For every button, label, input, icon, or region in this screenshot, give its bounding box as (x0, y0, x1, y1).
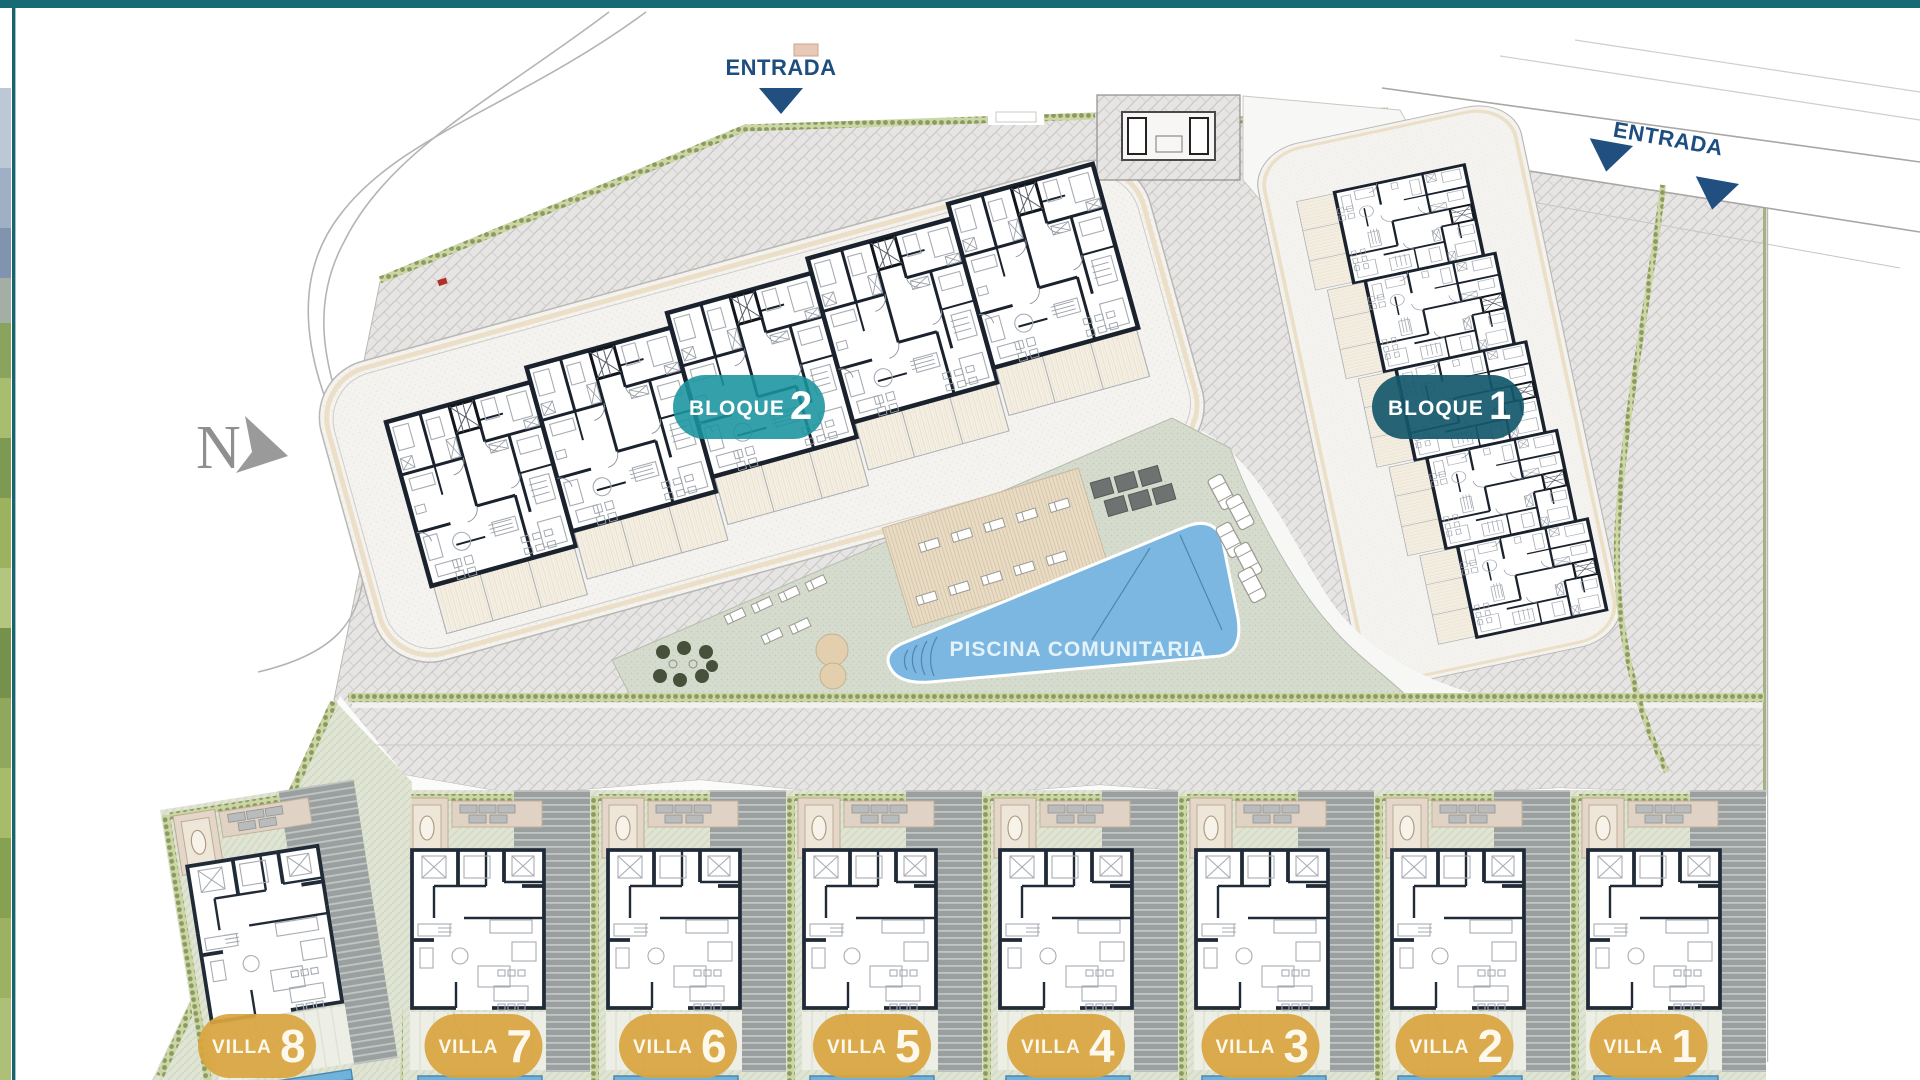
svg-text:VILLA: VILLA (439, 1037, 499, 1058)
svg-text:N: N (196, 414, 241, 482)
svg-text:VILLA: VILLA (1021, 1037, 1081, 1058)
svg-text:6: 6 (701, 1020, 727, 1072)
svg-text:BLOQUE: BLOQUE (1388, 397, 1484, 420)
svg-text:2: 2 (790, 384, 812, 428)
svg-text:8: 8 (280, 1020, 306, 1072)
svg-text:VILLA: VILLA (1216, 1037, 1276, 1058)
svg-text:5: 5 (895, 1020, 921, 1072)
svg-text:1: 1 (1672, 1020, 1698, 1072)
svg-text:PISCINA COMUNITARIA: PISCINA COMUNITARIA (950, 638, 1207, 661)
svg-text:VILLA: VILLA (1604, 1037, 1664, 1058)
svg-text:4: 4 (1089, 1020, 1115, 1072)
svg-text:ENTRADA: ENTRADA (725, 55, 836, 80)
svg-text:VILLA: VILLA (633, 1037, 693, 1058)
svg-text:VILLA: VILLA (827, 1037, 887, 1058)
svg-text:7: 7 (507, 1020, 533, 1072)
svg-text:VILLA: VILLA (212, 1037, 272, 1058)
svg-text:BLOQUE: BLOQUE (689, 397, 785, 420)
svg-text:1: 1 (1489, 384, 1511, 428)
svg-text:3: 3 (1284, 1020, 1310, 1072)
svg-text:2: 2 (1478, 1020, 1504, 1072)
svg-text:VILLA: VILLA (1410, 1037, 1470, 1058)
